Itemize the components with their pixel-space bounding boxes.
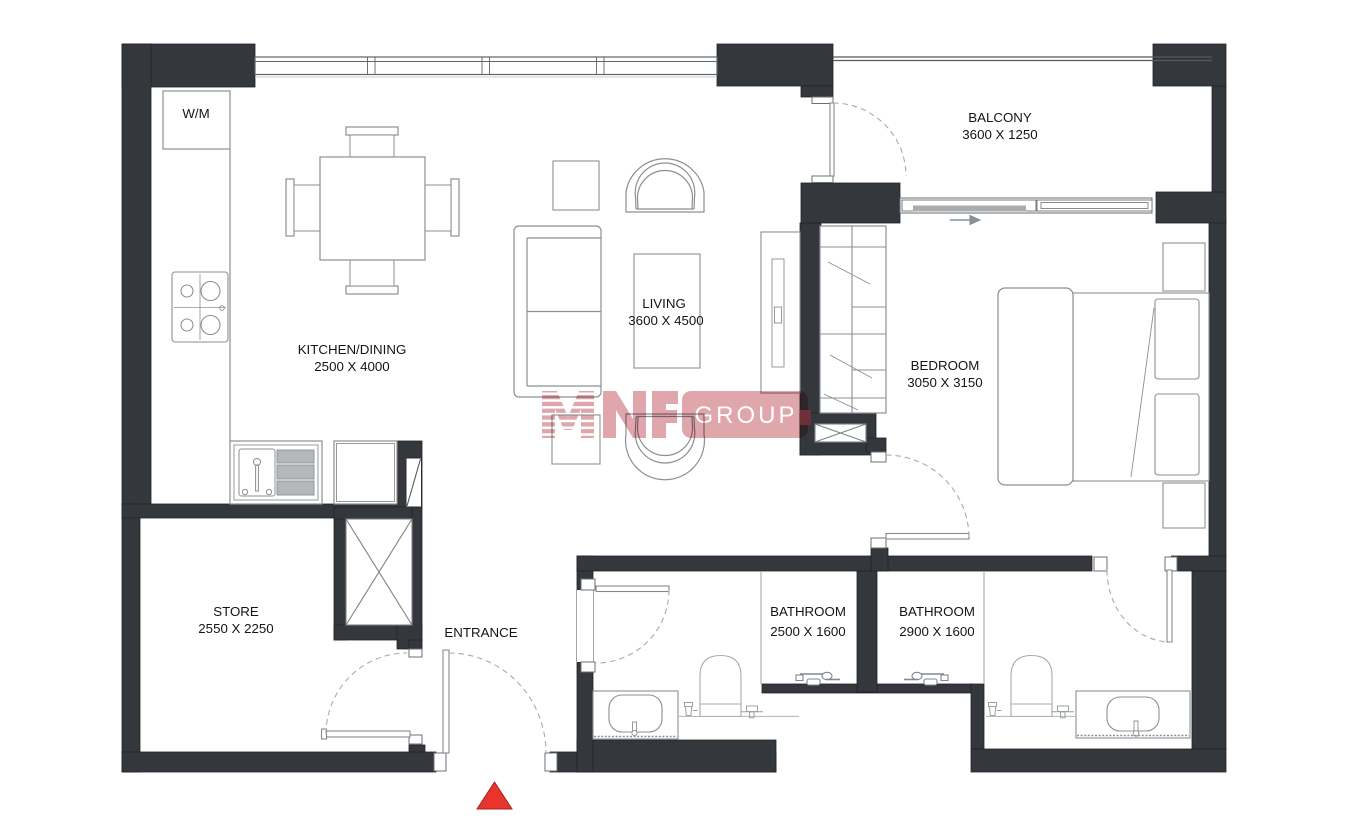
svg-text:2550 X 2250: 2550 X 2250 bbox=[198, 621, 273, 636]
svg-text:3600 X 4500: 3600 X 4500 bbox=[628, 313, 703, 328]
svg-text:BALCONY: BALCONY bbox=[968, 110, 1032, 125]
svg-text:GROUP: GROUP bbox=[694, 402, 797, 429]
svg-text:2900 X 1600: 2900 X 1600 bbox=[899, 624, 974, 639]
svg-text:2500 X 4000: 2500 X 4000 bbox=[314, 359, 389, 374]
svg-text:KITCHEN/DINING: KITCHEN/DINING bbox=[298, 342, 407, 357]
svg-text:3600 X 1250: 3600 X 1250 bbox=[962, 127, 1037, 142]
svg-text:BATHROOM: BATHROOM bbox=[770, 604, 846, 619]
svg-text:STORE: STORE bbox=[213, 604, 259, 619]
svg-text:3050 X 3150: 3050 X 3150 bbox=[907, 375, 982, 390]
svg-text:BEDROOM: BEDROOM bbox=[911, 358, 980, 373]
svg-text:LIVING: LIVING bbox=[642, 296, 686, 311]
svg-text:2500 X 1600: 2500 X 1600 bbox=[770, 624, 845, 639]
svg-text:W/M: W/M bbox=[182, 106, 209, 121]
svg-text:ENTRANCE: ENTRANCE bbox=[444, 625, 517, 640]
svg-text:BATHROOM: BATHROOM bbox=[899, 604, 975, 619]
